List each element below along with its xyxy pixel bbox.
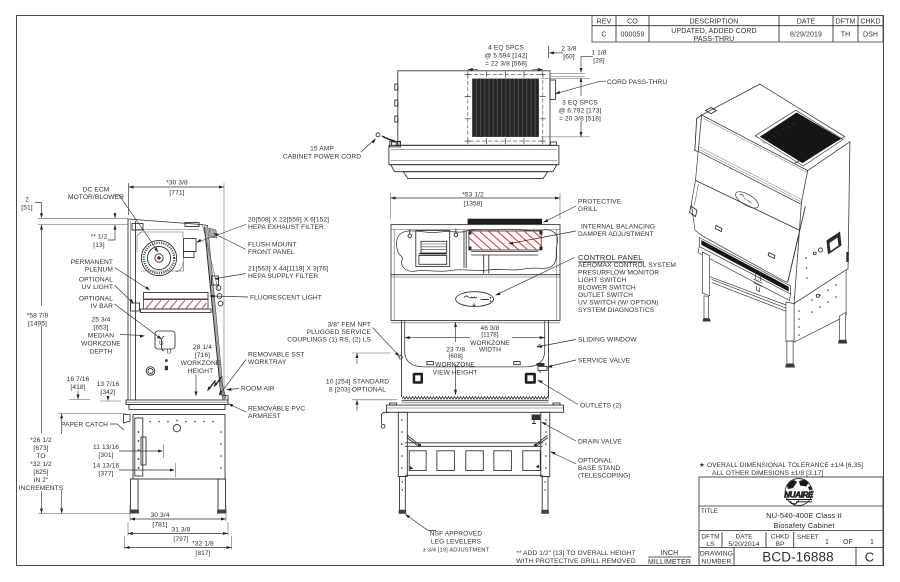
svg-text:REV: REV bbox=[597, 18, 612, 25]
svg-text:CONTROL PANEL: CONTROL PANEL bbox=[578, 253, 643, 262]
svg-text:[60]: [60] bbox=[563, 54, 574, 61]
svg-text:PASS-THRU: PASS-THRU bbox=[694, 36, 735, 43]
svg-text:** 1/2: ** 1/2 bbox=[91, 234, 108, 241]
svg-text:± 3/4 [19] ADJUSTMENT: ± 3/4 [19] ADJUSTMENT bbox=[423, 548, 490, 554]
svg-text:AEROMAX CONTROL SYSTEM: AEROMAX CONTROL SYSTEM bbox=[578, 262, 676, 269]
svg-text:[825]: [825] bbox=[33, 469, 48, 476]
svg-text:[673]: [673] bbox=[33, 445, 48, 452]
svg-text:HEIGHT: HEIGHT bbox=[188, 368, 214, 375]
svg-text:SERVICE VALVE: SERVICE VALVE bbox=[578, 358, 631, 365]
svg-text:UPDATED, ADDED CORD: UPDATED, ADDED CORD bbox=[671, 28, 756, 35]
svg-text:BCD-16888: BCD-16888 bbox=[762, 550, 833, 565]
svg-text:COUPLINGS (1) RS, (2) LS: COUPLINGS (1) RS, (2) LS bbox=[287, 337, 371, 344]
svg-text:(TELESCOPING): (TELESCOPING) bbox=[578, 473, 631, 480]
svg-text:PRESURFLOW MONITOR: PRESURFLOW MONITOR bbox=[578, 270, 659, 277]
svg-text:MILLIMETER: MILLIMETER bbox=[648, 559, 691, 566]
svg-text:11 13/16: 11 13/16 bbox=[93, 444, 119, 451]
svg-text:[51]: [51] bbox=[21, 205, 32, 212]
svg-text:*53 1/2: *53 1/2 bbox=[462, 192, 484, 199]
svg-text:[817]: [817] bbox=[195, 550, 210, 557]
svg-text:REMOVABLE SST: REMOVABLE SST bbox=[248, 352, 305, 359]
svg-text:HEPA SUPPLY FILTER: HEPA SUPPLY FILTER bbox=[248, 273, 318, 280]
svg-text:MEDIAN: MEDIAN bbox=[88, 333, 114, 340]
svg-text:@ 6.792 [173]: @ 6.792 [173] bbox=[559, 108, 602, 115]
svg-text:★ OVERALL DIMENSIONAL TOLERANC: ★ OVERALL DIMENSIONAL TOLERANCE ±1/4 [6.… bbox=[699, 461, 863, 469]
svg-text:IN 2": IN 2" bbox=[34, 477, 49, 484]
svg-text:21[563] X 44[1118] X 3[76]: 21[563] X 44[1118] X 3[76] bbox=[248, 266, 328, 273]
svg-text:30 3/4: 30 3/4 bbox=[151, 512, 170, 519]
svg-text:ALL OTHER DIMESIONS ±1/8 [3.17: ALL OTHER DIMESIONS ±1/8 [3.17] bbox=[712, 470, 823, 477]
svg-text:PLENUM: PLENUM bbox=[85, 267, 113, 274]
svg-text:[28]: [28] bbox=[593, 58, 604, 65]
svg-text:16 7/16: 16 7/16 bbox=[67, 376, 90, 383]
svg-text:[342]: [342] bbox=[100, 389, 115, 396]
svg-text:DESCRIPTION: DESCRIPTION bbox=[690, 18, 739, 25]
svg-text:1: 1 bbox=[870, 539, 874, 546]
svg-text:OF: OF bbox=[843, 539, 853, 546]
svg-text:2 3/8: 2 3/8 bbox=[561, 46, 576, 53]
svg-text:[418]: [418] bbox=[70, 384, 85, 391]
svg-text:10 [254] STANDARD: 10 [254] STANDARD bbox=[326, 379, 389, 386]
svg-text:PERMANENT: PERMANENT bbox=[71, 259, 113, 266]
svg-text:WIDTH: WIDTH bbox=[479, 347, 501, 354]
svg-text:[301]: [301] bbox=[98, 452, 113, 459]
svg-text:3 EQ SPCS: 3 EQ SPCS bbox=[562, 100, 598, 107]
svg-text:TO: TO bbox=[36, 453, 45, 460]
svg-text:[797]: [797] bbox=[173, 536, 188, 543]
svg-text:FLUORESCENT LIGHT: FLUORESCENT LIGHT bbox=[250, 295, 322, 302]
svg-text:UV SWITCH (W/ OPTION): UV SWITCH (W/ OPTION) bbox=[578, 300, 658, 307]
svg-text:TH: TH bbox=[841, 32, 851, 39]
svg-text:INCREMENTS: INCREMENTS bbox=[19, 485, 64, 492]
svg-text:CHKD: CHKD bbox=[860, 18, 880, 25]
svg-text:25 3/4: 25 3/4 bbox=[92, 317, 111, 324]
svg-text:= 20 3/8 [518]: = 20 3/8 [518] bbox=[559, 116, 601, 123]
svg-text:WORKZONE: WORKZONE bbox=[81, 341, 121, 348]
svg-text:8/29/2019: 8/29/2019 bbox=[790, 32, 822, 39]
svg-text:LEG LEVELERS: LEG LEVELERS bbox=[431, 539, 482, 546]
svg-text:LIGHT SWITCH: LIGHT SWITCH bbox=[578, 277, 626, 284]
svg-text:UV LIGHT: UV LIGHT bbox=[82, 284, 113, 291]
svg-text:14 13/16: 14 13/16 bbox=[93, 463, 120, 470]
svg-text:*58 7/8: *58 7/8 bbox=[27, 313, 49, 320]
svg-text:NSF APPROVED: NSF APPROVED bbox=[430, 531, 483, 538]
svg-text:= 22 3/8 [568]: = 22 3/8 [568] bbox=[485, 61, 527, 68]
svg-text:1 1/8: 1 1/8 bbox=[591, 50, 606, 57]
svg-text:PROTECTIVE: PROTECTIVE bbox=[578, 199, 622, 206]
svg-text:1: 1 bbox=[825, 539, 829, 546]
svg-text:[13]: [13] bbox=[93, 242, 104, 249]
svg-text:FRONT PANEL: FRONT PANEL bbox=[248, 249, 295, 256]
svg-text:NUMBER: NUMBER bbox=[701, 559, 731, 566]
svg-text:NU-540-400E Class II: NU-540-400E Class II bbox=[766, 511, 842, 520]
svg-text:4 EQ SPCS: 4 EQ SPCS bbox=[488, 45, 524, 52]
svg-text:[1495]: [1495] bbox=[28, 321, 47, 328]
svg-text:DFTM: DFTM bbox=[701, 534, 719, 541]
svg-text:WORKZONE: WORKZONE bbox=[181, 360, 221, 367]
svg-text:3/8" FEM NPT: 3/8" FEM NPT bbox=[328, 322, 371, 329]
svg-text:LS: LS bbox=[706, 541, 715, 548]
svg-text:SHEET: SHEET bbox=[797, 534, 819, 541]
svg-text:SLIDING WINDOW: SLIDING WINDOW bbox=[578, 337, 637, 344]
svg-text:@ 5.594 [142]: @ 5.594 [142] bbox=[485, 53, 528, 60]
svg-text:ROOM AIR: ROOM AIR bbox=[241, 386, 275, 393]
svg-text:WORKZONE: WORKZONE bbox=[435, 362, 475, 369]
svg-text:IV BAR: IV BAR bbox=[91, 303, 113, 310]
svg-text:CORD PASS-THRU: CORD PASS-THRU bbox=[607, 79, 667, 86]
svg-text:OPTIONAL: OPTIONAL bbox=[578, 458, 612, 465]
svg-text:PAPER CATCH: PAPER CATCH bbox=[61, 422, 108, 429]
svg-text:VIEW HEIGHT: VIEW HEIGHT bbox=[433, 370, 478, 377]
svg-text:OPTIONAL: OPTIONAL bbox=[79, 296, 113, 303]
svg-text:TITLE: TITLE bbox=[701, 508, 718, 515]
svg-text:[377]: [377] bbox=[98, 471, 113, 478]
svg-text:SYSTEM DIAGNOSTICS: SYSTEM DIAGNOSTICS bbox=[578, 307, 655, 314]
svg-text:Biosafety Cabinet: Biosafety Cabinet bbox=[773, 521, 835, 530]
svg-text:*32 1/8: *32 1/8 bbox=[192, 541, 214, 548]
svg-text:WORKTRAY: WORKTRAY bbox=[248, 359, 287, 366]
svg-text:*26 1/2: *26 1/2 bbox=[30, 437, 52, 444]
svg-text:8 [203] OPTIONAL: 8 [203] OPTIONAL bbox=[329, 387, 386, 394]
svg-text:CO: CO bbox=[627, 18, 638, 25]
svg-text:DSH: DSH bbox=[863, 32, 878, 39]
svg-text:000059: 000059 bbox=[621, 32, 645, 39]
svg-text:13 7/16: 13 7/16 bbox=[97, 381, 120, 388]
svg-text:DATE: DATE bbox=[797, 18, 816, 25]
svg-text:BLOWER SWITCH: BLOWER SWITCH bbox=[578, 285, 636, 292]
svg-text:FLUSH MOUNT: FLUSH MOUNT bbox=[248, 242, 297, 249]
svg-text:5/20/2014: 5/20/2014 bbox=[728, 541, 759, 548]
svg-text:OUTLETS (2): OUTLETS (2) bbox=[580, 403, 621, 410]
svg-text:[781]: [781] bbox=[152, 522, 167, 529]
svg-text:[1178]: [1178] bbox=[481, 331, 499, 338]
svg-text:BP: BP bbox=[775, 541, 785, 548]
svg-text:HEPA EXHAUST FILTER: HEPA EXHAUST FILTER bbox=[248, 224, 324, 231]
svg-text:*30 3/8: *30 3/8 bbox=[166, 180, 188, 187]
svg-text:20[508] X 22[559] X 6[152]: 20[508] X 22[559] X 6[152] bbox=[248, 217, 329, 224]
svg-text:PLUGGED SERVICE: PLUGGED SERVICE bbox=[307, 329, 372, 336]
svg-text:31 3/8: 31 3/8 bbox=[172, 527, 191, 534]
svg-text:C: C bbox=[865, 550, 875, 565]
svg-text:INTERNAL BALANCING: INTERNAL BALANCING bbox=[581, 224, 655, 231]
svg-text:DAMPER ADJUSTMENT: DAMPER ADJUSTMENT bbox=[578, 231, 654, 238]
svg-text:[1358]: [1358] bbox=[464, 201, 483, 208]
svg-text:28 1/4: 28 1/4 bbox=[193, 344, 212, 351]
svg-text:DRAWING: DRAWING bbox=[700, 551, 733, 558]
svg-text:[716]: [716] bbox=[195, 352, 210, 359]
svg-text:CHKD: CHKD bbox=[771, 534, 790, 541]
svg-text:WITH PROTECTIVE GRILL REMOVED: WITH PROTECTIVE GRILL REMOVED bbox=[516, 558, 636, 565]
svg-text:2: 2 bbox=[25, 197, 29, 204]
svg-text:[608]: [608] bbox=[449, 353, 463, 360]
svg-text:*32 1/2: *32 1/2 bbox=[30, 461, 52, 468]
svg-text:DFTM: DFTM bbox=[836, 18, 856, 25]
svg-text:** ADD 1/2" [13] TO OVERALL HE: ** ADD 1/2" [13] TO OVERALL HEIGHT bbox=[516, 550, 636, 557]
svg-text:U: U bbox=[167, 349, 172, 356]
svg-text:15 AMP: 15 AMP bbox=[310, 146, 334, 153]
svg-text:OPTIONAL: OPTIONAL bbox=[79, 277, 113, 284]
svg-text:[653]: [653] bbox=[93, 325, 108, 332]
svg-text:INCH: INCH bbox=[661, 550, 679, 557]
svg-text:BASE STAND: BASE STAND bbox=[578, 465, 620, 472]
svg-text:ARMREST: ARMREST bbox=[248, 413, 281, 420]
svg-text:OUTLET SWITCH: OUTLET SWITCH bbox=[578, 292, 633, 299]
svg-text:DRAIN VALVE: DRAIN VALVE bbox=[578, 439, 622, 446]
svg-text:C: C bbox=[601, 32, 606, 39]
svg-text:DC ECM: DC ECM bbox=[83, 187, 110, 194]
svg-text:CABINET POWER CORD: CABINET POWER CORD bbox=[283, 154, 361, 161]
svg-text:REMOVABLE PVC: REMOVABLE PVC bbox=[248, 406, 305, 413]
svg-text:DATE: DATE bbox=[736, 534, 753, 541]
svg-text:[771]: [771] bbox=[169, 190, 184, 197]
svg-text:NUAIRE: NUAIRE bbox=[784, 491, 814, 500]
svg-text:DEPTH: DEPTH bbox=[90, 349, 113, 356]
svg-text:GRILL: GRILL bbox=[578, 206, 598, 213]
